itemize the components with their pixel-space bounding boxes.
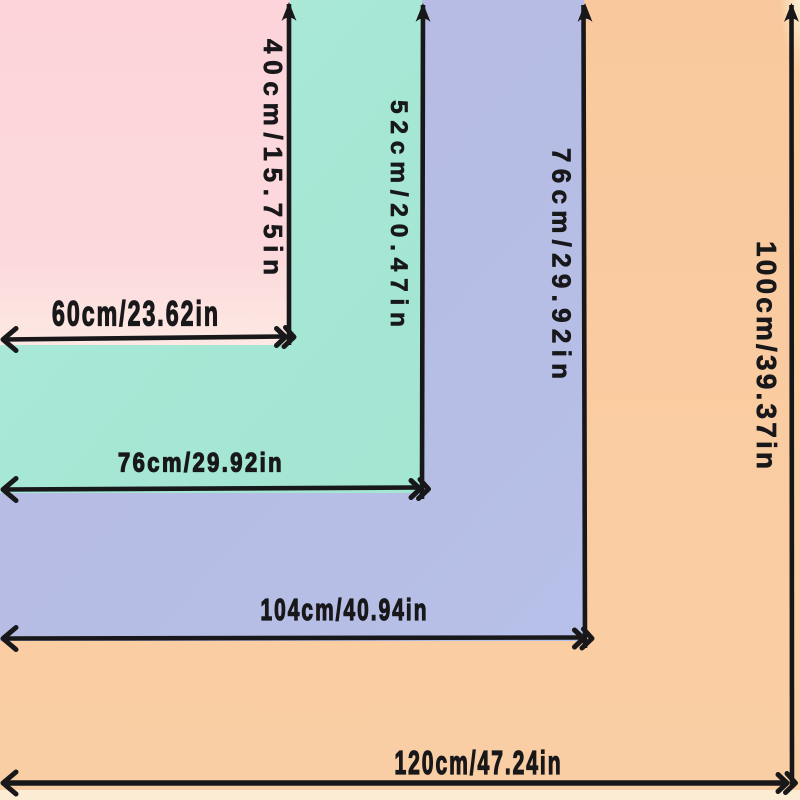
- svg-text:60cm/23.62in: 60cm/23.62in: [52, 295, 220, 334]
- svg-text:100cm/39.37in: 100cm/39.37in: [751, 241, 782, 469]
- svg-text:120cm/47.24in: 120cm/47.24in: [395, 744, 563, 781]
- svg-text:104cm/40.94in: 104cm/40.94in: [261, 592, 429, 627]
- svg-text:76cm/29.92in: 76cm/29.92in: [118, 447, 284, 477]
